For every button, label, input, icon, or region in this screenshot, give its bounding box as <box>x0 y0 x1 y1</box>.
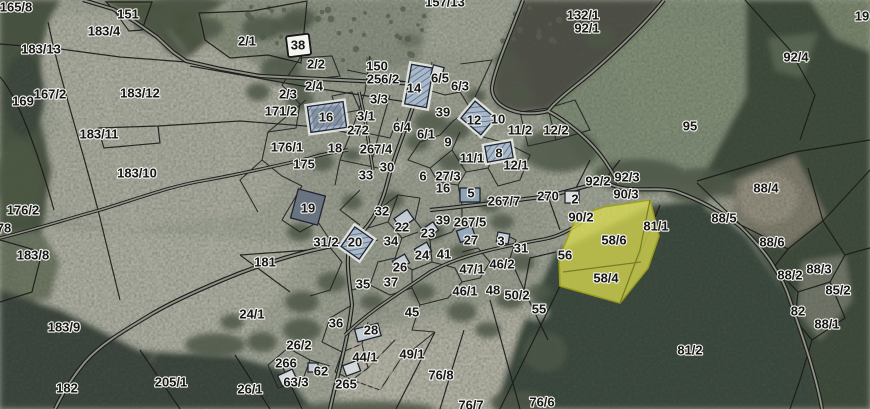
svg-text:19: 19 <box>855 9 869 24</box>
svg-text:26/1: 26/1 <box>237 382 262 397</box>
svg-text:5: 5 <box>467 186 474 201</box>
svg-text:35: 35 <box>356 277 370 292</box>
svg-text:3/3: 3/3 <box>370 92 388 107</box>
svg-text:24: 24 <box>415 248 430 263</box>
svg-text:92/3: 92/3 <box>614 170 639 185</box>
svg-text:41: 41 <box>437 247 451 262</box>
svg-text:9: 9 <box>444 135 451 150</box>
svg-text:12/1: 12/1 <box>503 158 528 173</box>
svg-text:24/1: 24/1 <box>239 307 264 322</box>
svg-text:8: 8 <box>495 146 502 161</box>
svg-text:6: 6 <box>419 169 426 184</box>
svg-text:90/3: 90/3 <box>613 187 638 202</box>
svg-text:76/6: 76/6 <box>529 395 554 409</box>
svg-text:6/3: 6/3 <box>451 79 469 94</box>
svg-text:167/2: 167/2 <box>34 87 67 102</box>
svg-text:81/2: 81/2 <box>677 343 702 358</box>
svg-text:88/5: 88/5 <box>711 211 736 226</box>
svg-text:31: 31 <box>514 241 528 256</box>
svg-text:62: 62 <box>314 364 328 379</box>
svg-text:3: 3 <box>497 234 504 249</box>
svg-text:267/4: 267/4 <box>360 142 393 157</box>
svg-text:26/2: 26/2 <box>286 338 311 353</box>
svg-text:58/4: 58/4 <box>593 271 619 286</box>
svg-text:14: 14 <box>407 81 422 96</box>
svg-text:27: 27 <box>464 233 478 248</box>
svg-text:85/2: 85/2 <box>825 283 850 298</box>
svg-text:76/7: 76/7 <box>458 398 483 409</box>
svg-text:270: 270 <box>537 189 559 204</box>
svg-text:151: 151 <box>117 7 139 22</box>
svg-text:2/1: 2/1 <box>238 34 256 49</box>
svg-text:11/1: 11/1 <box>460 151 485 166</box>
svg-text:171/2: 171/2 <box>265 104 298 119</box>
svg-text:90/2: 90/2 <box>568 210 593 225</box>
svg-text:176/2: 176/2 <box>7 203 40 218</box>
svg-text:56: 56 <box>558 248 572 263</box>
svg-text:46/2: 46/2 <box>489 257 514 272</box>
svg-text:6/5: 6/5 <box>431 71 449 86</box>
svg-text:95: 95 <box>683 119 697 134</box>
svg-text:2/4: 2/4 <box>305 79 324 94</box>
svg-text:266: 266 <box>275 356 297 371</box>
svg-text:183/8: 183/8 <box>17 248 50 263</box>
svg-text:28: 28 <box>364 323 378 338</box>
svg-text:2/3: 2/3 <box>279 87 297 102</box>
svg-text:23: 23 <box>421 226 435 241</box>
svg-text:19: 19 <box>301 201 315 216</box>
svg-text:92/4: 92/4 <box>783 50 809 65</box>
svg-text:88/3: 88/3 <box>806 262 831 277</box>
svg-text:2: 2 <box>571 192 578 207</box>
svg-text:34: 34 <box>384 234 399 249</box>
svg-text:81/1: 81/1 <box>643 219 668 234</box>
svg-text:63/3: 63/3 <box>283 375 308 390</box>
svg-text:36: 36 <box>329 316 343 331</box>
svg-text:165/8: 165/8 <box>0 0 32 15</box>
svg-text:48: 48 <box>486 283 500 298</box>
svg-text:78: 78 <box>0 221 11 236</box>
svg-text:267/7: 267/7 <box>488 194 521 209</box>
svg-text:205/1: 205/1 <box>155 375 188 390</box>
svg-text:267/5: 267/5 <box>454 215 487 230</box>
svg-text:44/1: 44/1 <box>352 350 377 365</box>
svg-text:169: 169 <box>12 94 34 109</box>
svg-text:265: 265 <box>335 377 357 392</box>
svg-text:176/1: 176/1 <box>271 140 304 155</box>
svg-text:92/2: 92/2 <box>585 174 610 189</box>
svg-text:18: 18 <box>328 141 342 156</box>
svg-text:49/1: 49/1 <box>399 347 424 362</box>
svg-text:88/4: 88/4 <box>753 181 779 196</box>
svg-text:183/4: 183/4 <box>88 24 121 39</box>
svg-text:39: 39 <box>436 105 450 120</box>
svg-text:256/2: 256/2 <box>367 72 400 87</box>
svg-text:88/1: 88/1 <box>814 317 839 332</box>
svg-text:88/2: 88/2 <box>777 268 802 283</box>
svg-text:45: 45 <box>405 305 419 320</box>
svg-text:16: 16 <box>436 181 450 196</box>
svg-text:12/2: 12/2 <box>543 123 568 138</box>
svg-text:92/1: 92/1 <box>574 21 599 36</box>
svg-text:6/4: 6/4 <box>393 120 412 135</box>
svg-text:33: 33 <box>359 168 373 183</box>
svg-text:11/2: 11/2 <box>508 123 533 138</box>
svg-text:175: 175 <box>293 157 315 172</box>
svg-text:183/12: 183/12 <box>120 86 160 101</box>
svg-text:3/1: 3/1 <box>357 109 375 124</box>
svg-text:16: 16 <box>319 110 333 125</box>
svg-text:46/1: 46/1 <box>452 284 477 299</box>
svg-text:183/9: 183/9 <box>48 320 81 335</box>
svg-text:2/2: 2/2 <box>307 57 325 72</box>
svg-text:183/11: 183/11 <box>79 127 118 142</box>
svg-text:182: 182 <box>56 381 78 396</box>
svg-text:183/13: 183/13 <box>21 42 61 57</box>
svg-text:39: 39 <box>436 213 450 228</box>
svg-text:37: 37 <box>384 275 398 290</box>
svg-text:58/6: 58/6 <box>601 233 626 248</box>
svg-text:88/6: 88/6 <box>759 235 784 250</box>
svg-text:82: 82 <box>791 304 805 319</box>
svg-text:20: 20 <box>348 235 362 250</box>
svg-text:76/8: 76/8 <box>428 368 453 383</box>
svg-text:22: 22 <box>395 220 409 235</box>
svg-text:272: 272 <box>347 123 369 138</box>
svg-text:50/2: 50/2 <box>504 288 529 303</box>
svg-text:55: 55 <box>532 302 546 317</box>
svg-text:183/10: 183/10 <box>117 166 157 181</box>
svg-text:47/1: 47/1 <box>459 262 484 277</box>
svg-text:38: 38 <box>291 38 305 53</box>
svg-text:181: 181 <box>254 255 276 270</box>
svg-text:26: 26 <box>393 260 407 275</box>
svg-text:157/13: 157/13 <box>425 0 465 10</box>
svg-text:12: 12 <box>467 113 481 128</box>
svg-text:6/1: 6/1 <box>417 127 435 142</box>
svg-text:31/2: 31/2 <box>313 235 338 250</box>
svg-text:10: 10 <box>491 112 505 127</box>
svg-text:32: 32 <box>375 204 389 219</box>
svg-text:30: 30 <box>380 160 394 175</box>
